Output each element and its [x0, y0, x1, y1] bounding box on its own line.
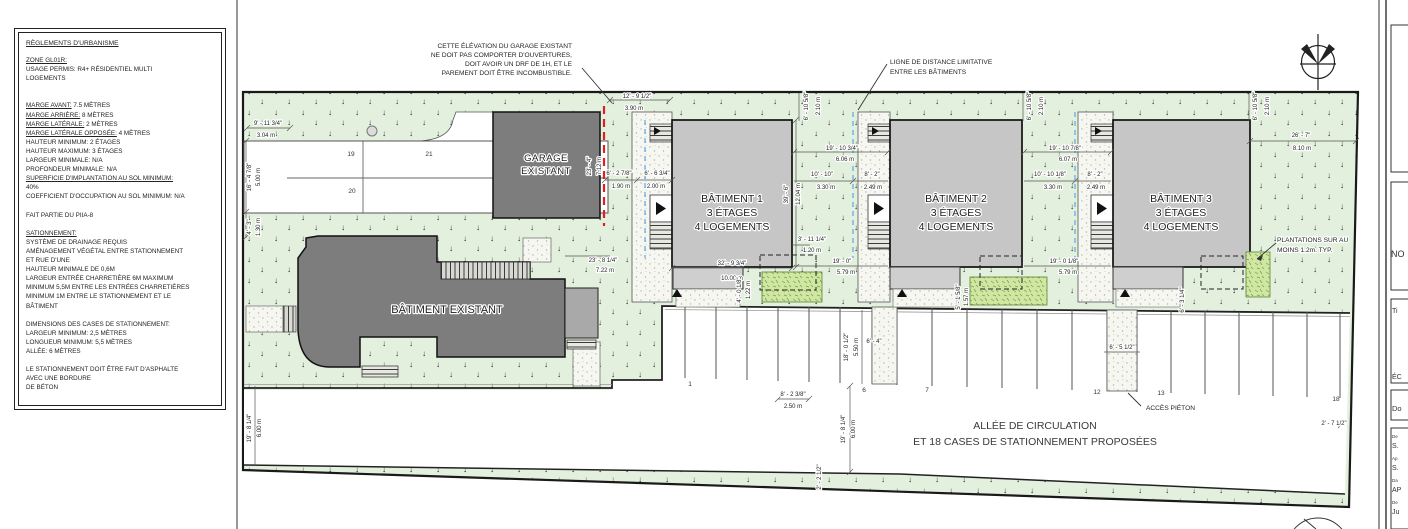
- regulation-line: MARGE ARRIÈRE: 8 MÈTRES: [26, 111, 215, 120]
- regulation-line: [26, 220, 215, 229]
- distance-note: LIGNE DE DISTANCE LIMITATIVE: [890, 59, 993, 66]
- svg-text:Ti: Ti: [1392, 308, 1398, 315]
- svg-text:3' - 11 1/4": 3' - 11 1/4": [798, 237, 826, 243]
- svg-text:6.00 m: 6.00 m: [851, 420, 857, 438]
- svg-text:7.22 m: 7.22 m: [596, 268, 614, 274]
- svg-text:6.06 m: 6.06 m: [836, 157, 854, 163]
- regulation-line: HAUTEUR MAXIMUM: 3 ÉTAGES: [26, 147, 215, 156]
- regulation-line: LARGEUR ENTRÉE CHARRETIÈRE 6M MAXIMUM: [26, 274, 215, 283]
- garage-label: GARAGE: [524, 153, 568, 164]
- svg-text:4 LOGEMENTS: 4 LOGEMENTS: [919, 221, 994, 233]
- svg-text:3 ÉTAGES: 3 ÉTAGES: [931, 206, 982, 219]
- regulation-line: [26, 83, 215, 92]
- regulation-line: ALLÉE: 6 MÈTRES: [26, 347, 215, 356]
- regulation-line: USAGE PERMIS: R4+ RÉSIDENTIEL MULTI: [26, 65, 215, 74]
- svg-text:De: De: [1392, 434, 1398, 439]
- svg-text:3 ÉTAGES: 3 ÉTAGES: [1156, 206, 1207, 219]
- svg-text:AP: AP: [1392, 487, 1402, 494]
- building-3-label: BÂTIMENT 3: [1150, 192, 1212, 205]
- svg-text:39' - 6": 39' - 6": [784, 185, 790, 204]
- regulation-line: FAIT PARTIE DU PIIA-8: [26, 211, 215, 220]
- svg-text:19' - 8 1/4": 19' - 8 1/4": [247, 414, 253, 443]
- regulation-line: ZONE GL01R:: [26, 56, 215, 65]
- regulation-line: MARGE AVANT: 7.5 MÈTRES: [26, 101, 215, 110]
- svg-text:ENTRE LES BÂTIMENTS: ENTRE LES BÂTIMENTS: [890, 67, 967, 76]
- svg-text:Da: Da: [1392, 478, 1398, 483]
- svg-text:19' - 0": 19' - 0": [833, 259, 852, 265]
- svg-text:4 LOGEMENTS: 4 LOGEMENTS: [695, 221, 770, 233]
- svg-text:5.00 m: 5.00 m: [256, 168, 262, 186]
- svg-text:6' - 3 1/4": 6' - 3 1/4": [1180, 287, 1186, 312]
- regulation-line: HAUTEUR MINIMALE DE 0,6M: [26, 265, 215, 274]
- svg-text:3.30 m: 3.30 m: [1044, 185, 1062, 191]
- svg-text:32' - 9 3/4": 32' - 9 3/4": [718, 261, 747, 267]
- svg-text:S.: S.: [1392, 443, 1399, 450]
- svg-text:3 ÉTAGES: 3 ÉTAGES: [707, 206, 758, 219]
- svg-text:6' - 4": 6' - 4": [866, 339, 881, 345]
- svg-text:2' - 7 1/2": 2' - 7 1/2": [1321, 421, 1346, 427]
- svg-text:8' - 2": 8' - 2": [1087, 172, 1102, 178]
- svg-text:6: 6: [862, 387, 866, 394]
- svg-text:12: 12: [1093, 389, 1101, 396]
- svg-text:1.57 m: 1.57 m: [964, 288, 970, 306]
- entry-strip-b2: [853, 112, 890, 302]
- svg-text:1.30 m: 1.30 m: [256, 218, 262, 236]
- planting-bed: [970, 277, 1047, 305]
- svg-text:6' - 10 5/8": 6' - 10 5/8": [1253, 92, 1259, 121]
- title-block: NO Ti ÉC Do De S. Ap S. Da AP De Ju: [1391, 25, 1408, 529]
- svg-text:8.10 m: 8.10 m: [1293, 146, 1311, 152]
- regulation-line: ET RUE D'UNE: [26, 256, 215, 265]
- front-stoop: [362, 366, 398, 377]
- regulation-line: PROFONDEUR MINIMALE: N/A: [26, 165, 215, 174]
- svg-text:ÉC: ÉC: [1392, 372, 1402, 381]
- detail-bubble: [1287, 518, 1349, 529]
- svg-text:MOINS 1.2m. TYP.: MOINS 1.2m. TYP.: [1277, 247, 1333, 254]
- svg-text:EXISTANT: EXISTANT: [521, 166, 571, 177]
- svg-text:2.10 m: 2.10 m: [816, 97, 822, 115]
- regulation-line: BÂTIMENT: [26, 302, 215, 311]
- allee-label: ALLÉE DE CIRCULATION: [973, 419, 1097, 432]
- regulation-line: LONGUEUR MINIMUM: 5,5 MÈTRES: [26, 338, 215, 347]
- entry-strip-b1: [632, 112, 672, 302]
- svg-text:5' - 1 5/8": 5' - 1 5/8": [956, 284, 962, 309]
- svg-text:6' - 10 5/8": 6' - 10 5/8": [804, 92, 810, 121]
- regulation-line: MARGE LATÉRALE: 2 MÈTRES: [26, 120, 215, 129]
- svg-text:DOIT AVOIR UN DRF DE 1H, ET LE: DOIT AVOIR UN DRF DE 1H, ET LE: [465, 61, 573, 68]
- left-steps: [283, 306, 296, 332]
- regulation-line: COEFFICIENT D'OCCUPATION AU SOL MINIMUM:…: [26, 192, 215, 201]
- svg-text:2.49 m: 2.49 m: [864, 185, 882, 191]
- svg-text:8' - 2": 8' - 2": [864, 172, 879, 178]
- svg-text:6' - 10 5/8": 6' - 10 5/8": [1027, 92, 1033, 121]
- svg-text:Ap: Ap: [1392, 456, 1398, 461]
- svg-text:18' - 0 1/2": 18' - 0 1/2": [844, 333, 850, 362]
- svg-text:6' - 2 7/8": 6' - 2 7/8": [606, 171, 631, 177]
- regulation-line: AMÉNAGEMENT VÉGÉTAL ENTRE STATIONNEMENT: [26, 247, 215, 256]
- plantations-note: PLANTATIONS SUR AU: [1277, 237, 1348, 244]
- svg-text:20: 20: [348, 188, 356, 195]
- building-steps-band: [441, 262, 530, 279]
- regulation-line: LARGEUR MINIMALE: N/A: [26, 156, 215, 165]
- regulations-inner: RÈGLEMENTS D'URBANISME ZONE GL01R: USAGE…: [18, 32, 222, 406]
- svg-text:Ju: Ju: [1392, 509, 1400, 516]
- svg-text:S.: S.: [1392, 465, 1399, 472]
- rear-concrete-patch: [523, 238, 551, 262]
- svg-text:2.50 m: 2.50 m: [784, 404, 802, 410]
- left-concrete-patch: [246, 306, 286, 332]
- svg-text:5.50 m: 5.50 m: [854, 338, 860, 356]
- svg-text:10' - 10": 10' - 10": [811, 172, 833, 178]
- regulation-line: [26, 92, 215, 101]
- svg-text:PAREMENT DOIT ÊTRE INCOMBUSTIB: PAREMENT DOIT ÊTRE INCOMBUSTIBLE.: [442, 68, 573, 77]
- regulation-line: DE BÉTON: [26, 383, 215, 392]
- svg-text:9' - 11 3/4": 9' - 11 3/4": [254, 121, 282, 127]
- regulation-line: SUPERFICIE D'IMPLANTATION AU SOL MINIMUM…: [26, 174, 215, 183]
- regulations-box: RÈGLEMENTS D'URBANISME ZONE GL01R: USAGE…: [14, 28, 226, 410]
- regulation-line: SATIONNEMENT:: [26, 229, 215, 238]
- svg-text:19' - 10 3/4": 19' - 10 3/4": [826, 146, 858, 152]
- regulation-line: AVEC UNE BORDURE: [26, 374, 215, 383]
- svg-text:2.49 m: 2.49 m: [1087, 185, 1105, 191]
- svg-text:3.04 m: 3.04 m: [257, 133, 275, 139]
- regulation-line: SYSTÈME DE DRAINAGE REQUIS: [26, 238, 215, 247]
- svg-text:2' - 2 1/2": 2' - 2 1/2": [817, 464, 823, 489]
- svg-text:3.30 m: 3.30 m: [817, 185, 835, 191]
- svg-text:23' - 4": 23' - 4": [587, 157, 593, 176]
- svg-text:4 LOGEMENTS: 4 LOGEMENTS: [1144, 221, 1219, 233]
- svg-text:Do: Do: [1392, 404, 1402, 413]
- svg-text:6' - 6 3/4": 6' - 6 3/4": [644, 171, 669, 177]
- regulation-line: MINIMUM 5,5M ENTRE LES ENTRÉES CHARRETIÈ…: [26, 283, 215, 292]
- svg-text:26' - 7": 26' - 7": [1292, 133, 1311, 139]
- stoop: [1113, 267, 1183, 289]
- svg-text:10' - 10 1/8": 10' - 10 1/8": [1034, 172, 1066, 178]
- svg-text:1.90 m: 1.90 m: [612, 184, 630, 190]
- regulations-lines: ZONE GL01R: USAGE PERMIS: R4+ RÉSIDENTIE…: [26, 56, 215, 392]
- regulation-line: DIMENSIONS DES CASES DE STATIONNEMENT:: [26, 320, 215, 329]
- svg-text:2.00 m: 2.00 m: [647, 184, 665, 190]
- svg-text:19' - 8 1/4": 19' - 8 1/4": [841, 415, 847, 444]
- regulation-line: [26, 311, 215, 320]
- stoop: [890, 267, 960, 289]
- svg-text:7: 7: [925, 387, 929, 394]
- svg-text:ET 18 CASES DE STATIONNEMENT P: ET 18 CASES DE STATIONNEMENT PROPOSÉES: [913, 435, 1157, 448]
- svg-text:NE DOIT PAS COMPORTER D'OUVERT: NE DOIT PAS COMPORTER D'OUVERTURES,: [431, 52, 572, 59]
- svg-text:5.79 m: 5.79 m: [837, 270, 855, 276]
- svg-text:De: De: [1392, 500, 1398, 505]
- svg-text:23' - 8 1/4": 23' - 8 1/4": [589, 258, 618, 264]
- garage-note: CETTE ÉLÉVATION DU GARAGE EXISTANT: [438, 41, 572, 50]
- svg-text:19' - 0 1/8": 19' - 0 1/8": [1050, 259, 1079, 265]
- svg-text:13: 13: [1157, 390, 1165, 397]
- planting-bed: [762, 272, 822, 302]
- svg-text:6' - 5 1/2": 6' - 5 1/2": [1109, 345, 1134, 351]
- building-2-label: BÂTIMENT 2: [925, 192, 987, 205]
- svg-text:18: 18: [1332, 396, 1340, 403]
- side-porch-steps: [567, 340, 596, 349]
- acces-pieton-label: ACCÈS PIÉTON: [1146, 403, 1195, 412]
- regulations-title: RÈGLEMENTS D'URBANISME: [26, 40, 215, 47]
- svg-text:NO: NO: [1391, 249, 1405, 259]
- regulation-line: MARGE LATÉRALE OPPOSÉE: 4 MÈTRES: [26, 129, 215, 138]
- svg-text:1.22 m: 1.22 m: [746, 281, 752, 299]
- svg-text:19' - 10 7/8": 19' - 10 7/8": [1049, 146, 1081, 152]
- front-walk: [676, 289, 740, 307]
- svg-text:12' - 9 1/2": 12' - 9 1/2": [623, 94, 652, 100]
- regulation-line: 40%: [26, 183, 215, 192]
- regulation-line: HAUTEUR MINIMUM: 2 ÉTAGES: [26, 138, 215, 147]
- svg-text:6.00 m: 6.00 m: [257, 419, 263, 437]
- svg-text:21: 21: [425, 151, 433, 158]
- svg-text:4' - 3": 4' - 3": [247, 219, 253, 234]
- regulation-line: [26, 356, 215, 365]
- svg-text:3.90 m: 3.90 m: [625, 106, 643, 112]
- site-plan-sheet: ↓ ↓: [0, 0, 1408, 529]
- svg-text:4' - 0 1/8": 4' - 0 1/8": [737, 277, 743, 302]
- svg-text:2.10 m: 2.10 m: [1039, 97, 1045, 115]
- svg-text:12.04 m: 12.04 m: [796, 183, 802, 205]
- regulation-line: LE STATIONNEMENT DOIT ÊTRE FAIT D'ASPHAL…: [26, 365, 215, 374]
- svg-text:1: 1: [688, 381, 692, 388]
- svg-text:2.10 m: 2.10 m: [1265, 97, 1271, 115]
- svg-text:5.79 m: 5.79 m: [1059, 270, 1077, 276]
- regulation-line: MINIMUM 1M ENTRE LE STATIONNEMENT ET LE: [26, 292, 215, 301]
- svg-text:19: 19: [347, 151, 355, 158]
- regulation-line: LARGEUR MINIMUM: 2,5 MÈTRES: [26, 329, 215, 338]
- svg-text:8' - 2 3/8": 8' - 2 3/8": [780, 392, 805, 398]
- existing-building-label: BÂTIMENT EXISTANT: [391, 303, 503, 316]
- svg-text:16' - 4 7/8": 16' - 4 7/8": [247, 163, 253, 192]
- entry-strip-b3: [1075, 112, 1113, 302]
- regulation-line: LOGEMENTS: [26, 74, 215, 83]
- svg-text:6.07 m: 6.07 m: [1059, 157, 1077, 163]
- svg-text:7.12 m: 7.12 m: [597, 157, 603, 175]
- north-arrow: [1300, 34, 1336, 90]
- svg-text:1.20 m: 1.20 m: [803, 248, 821, 254]
- tree-symbol: [367, 126, 377, 136]
- regulation-line: [26, 202, 215, 211]
- side-porch: [565, 288, 598, 338]
- building-1-label: BÂTIMENT 1: [701, 192, 763, 205]
